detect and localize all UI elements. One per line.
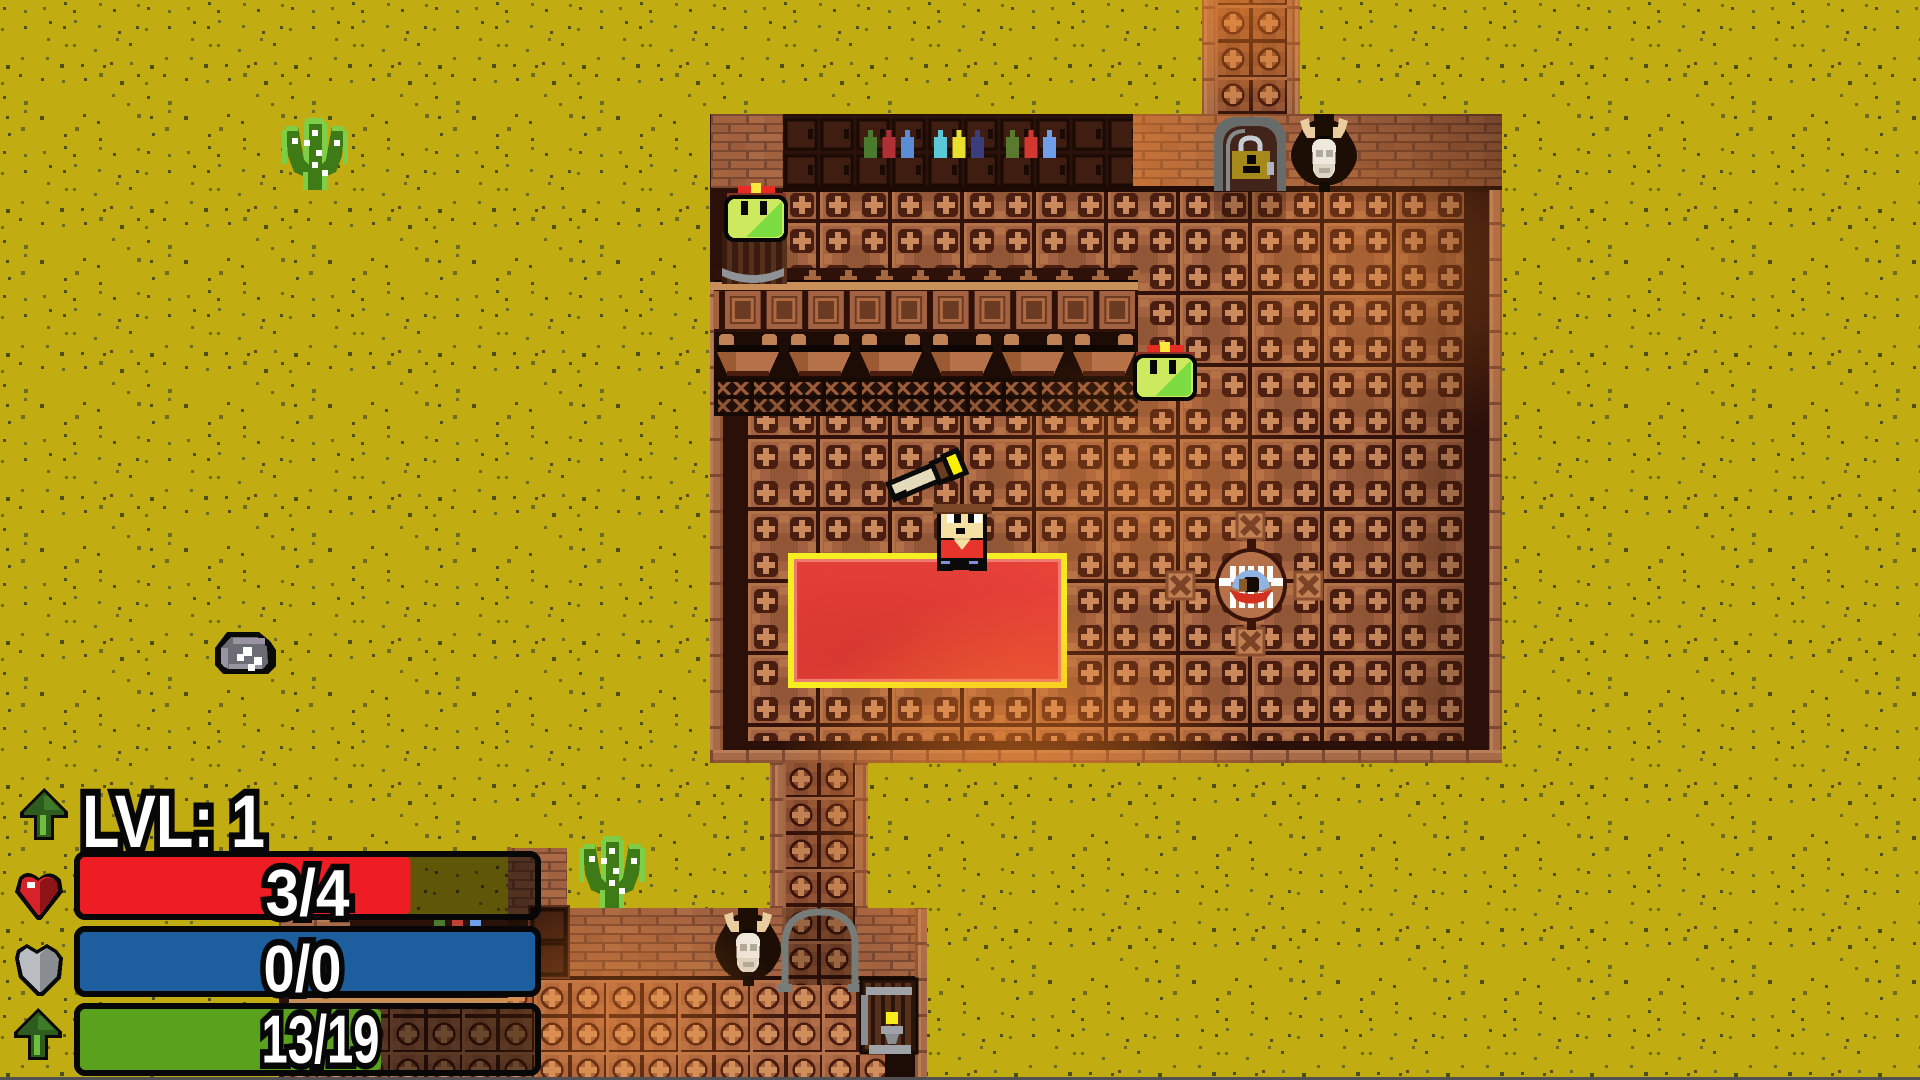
svg-text:13/19: 13/19 bbox=[262, 1002, 380, 1078]
svg-text:0/0: 0/0 bbox=[264, 932, 342, 1006]
svg-text:3/4: 3/4 bbox=[266, 856, 350, 930]
svg-text:LVL: 1: LVL: 1 bbox=[82, 780, 265, 863]
